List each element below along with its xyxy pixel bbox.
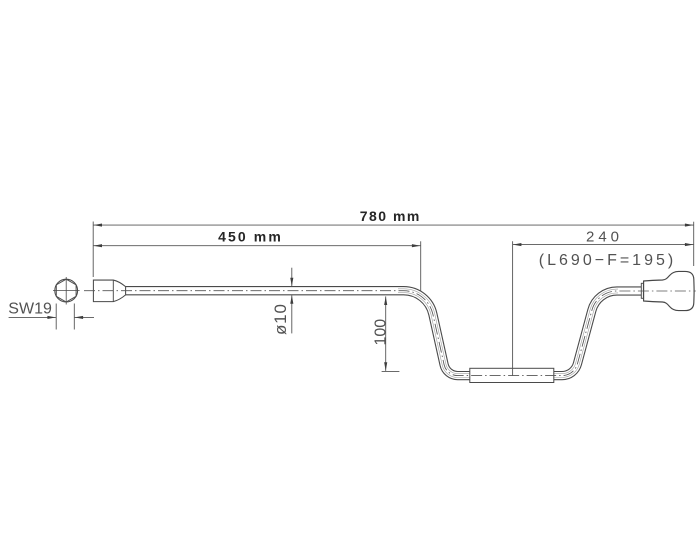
svg-text:240: 240: [586, 229, 623, 246]
svg-text:450 mm: 450 mm: [218, 229, 283, 245]
svg-text:(L690−F=195): (L690−F=195): [539, 252, 676, 269]
svg-text:100: 100: [373, 319, 390, 346]
svg-text:ø10: ø10: [271, 303, 290, 335]
svg-text:780 mm: 780 mm: [360, 208, 421, 224]
svg-text:SW19: SW19: [8, 300, 52, 317]
